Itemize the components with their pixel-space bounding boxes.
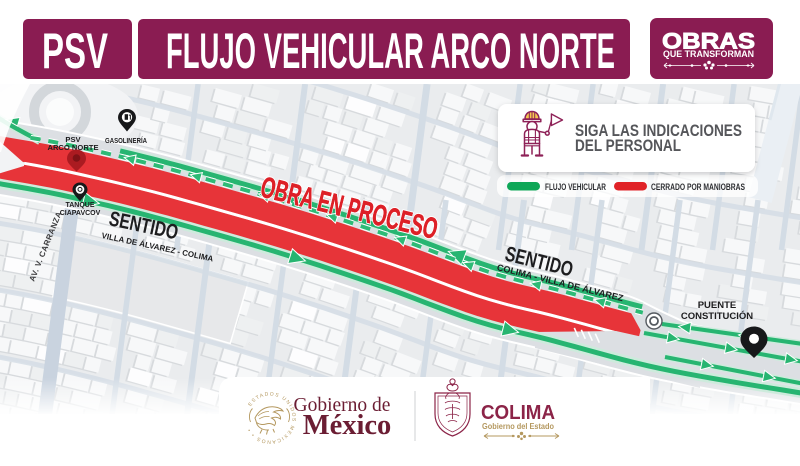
- svg-text:GASOLINERÍA: GASOLINERÍA: [105, 136, 147, 145]
- svg-text:CERRADO POR MANIOBRAS: CERRADO POR MANIOBRAS: [651, 182, 745, 192]
- svg-text:FLUJO VEHICULAR ARCO NORTE: FLUJO VEHICULAR ARCO NORTE: [166, 23, 615, 79]
- svg-text:CONSTITUCIÓN: CONSTITUCIÓN: [681, 310, 753, 322]
- svg-text:Gobierno del Estado: Gobierno del Estado: [482, 421, 554, 431]
- svg-text:DEL PERSONAL: DEL PERSONAL: [575, 137, 681, 155]
- svg-text:FLUJO VEHICULAR: FLUJO VEHICULAR: [545, 182, 606, 192]
- svg-text:CIAPAVCOV: CIAPAVCOV: [60, 210, 101, 217]
- svg-text:QUE TRANSFORMAN: QUE TRANSFORMAN: [663, 49, 754, 59]
- svg-text:México: México: [303, 410, 392, 441]
- svg-text:PSV: PSV: [42, 23, 108, 79]
- svg-text:TANQUE: TANQUE: [65, 202, 94, 209]
- svg-text:PUENTE: PUENTE: [698, 300, 737, 311]
